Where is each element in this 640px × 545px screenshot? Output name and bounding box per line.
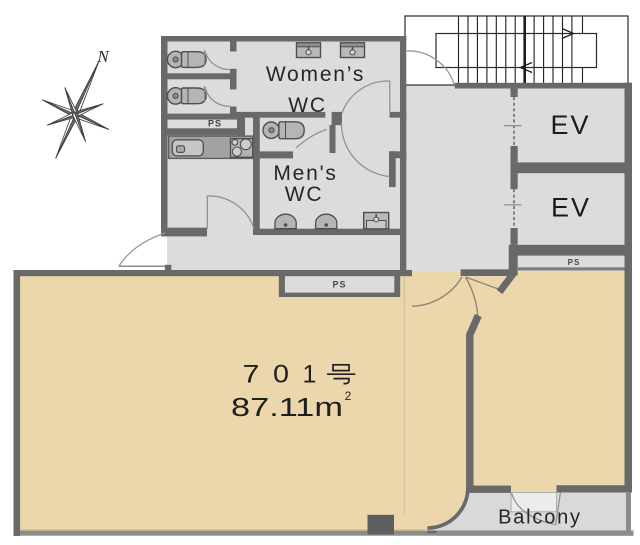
svg-text:Women’s: Women’s: [266, 63, 365, 86]
svg-text:7: 7: [243, 361, 260, 389]
svg-text:PS: PS: [208, 119, 222, 129]
svg-text:PS: PS: [568, 258, 581, 267]
svg-text:87.11m: 87.11m: [231, 394, 343, 422]
svg-text:1: 1: [303, 361, 317, 389]
svg-text:WC: WC: [285, 183, 324, 206]
svg-text:N: N: [96, 47, 110, 66]
svg-text:WC: WC: [288, 94, 327, 117]
svg-text:EV: EV: [551, 193, 591, 223]
svg-text:PS: PS: [332, 280, 346, 290]
svg-text:Men's: Men's: [273, 162, 337, 185]
svg-text:2: 2: [345, 389, 352, 403]
svg-text:EV: EV: [550, 110, 590, 140]
svg-text:0: 0: [273, 361, 289, 389]
svg-text:Balcony: Balcony: [498, 507, 582, 529]
